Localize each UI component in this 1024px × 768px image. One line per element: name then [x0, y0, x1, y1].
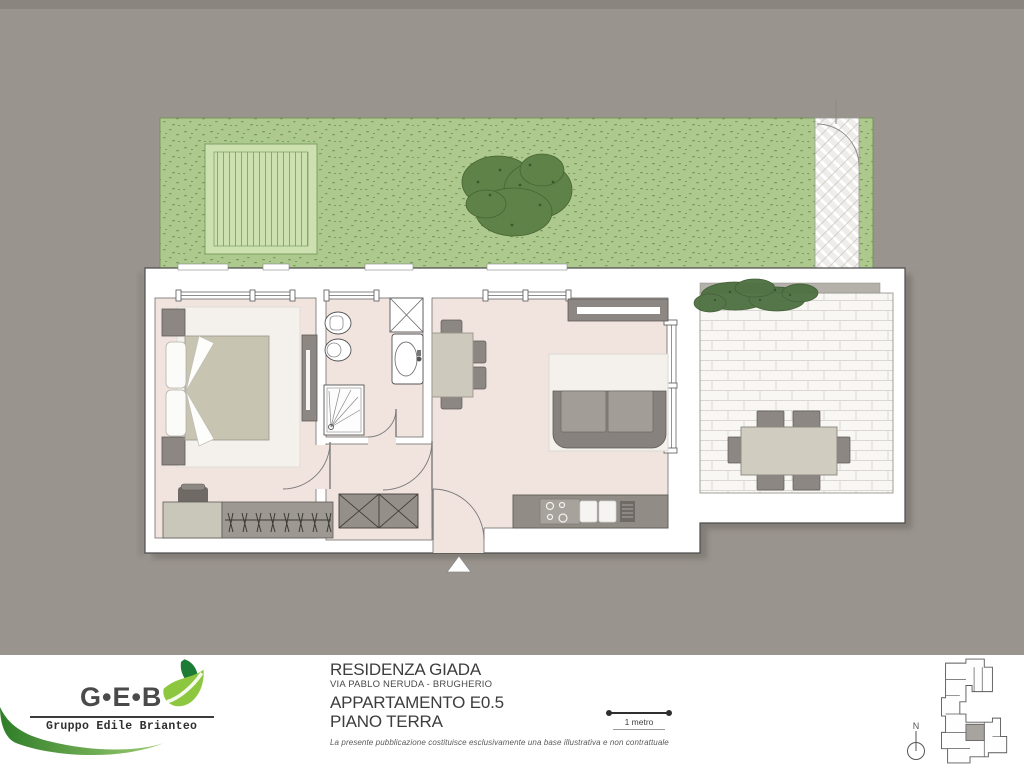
window-living	[483, 290, 571, 301]
window-bathroom	[324, 290, 379, 301]
apartment-label: APPARTAMENTO E0.5	[330, 693, 690, 712]
geb-logo: G•E•B Gruppo Edile Brianteo	[0, 655, 240, 768]
listing-floorplan-sheet: G•E•B Gruppo Edile Brianteo RESIDENZA GI…	[0, 0, 1024, 768]
toilet-icon	[325, 312, 351, 334]
backdrop-top-strip	[0, 0, 1024, 9]
washing-machine-icon	[390, 298, 423, 332]
garden-path	[815, 100, 859, 268]
residence-title: RESIDENZA GIADA	[330, 660, 690, 679]
pouf-icon	[178, 484, 208, 504]
key-plan-icon	[928, 657, 1010, 767]
compass-label: N	[913, 721, 920, 731]
residence-address: VIA PABLO NERUDA - BRUGHERIO	[330, 679, 690, 690]
sink-icon	[392, 334, 423, 384]
logo-leaf-icon	[155, 658, 207, 716]
dresser-icon	[163, 502, 222, 538]
floor-plan-drawing	[0, 0, 1024, 768]
sideboard-icon	[568, 299, 668, 321]
building-shadow-left	[138, 272, 145, 556]
kitchen-counter-icon	[513, 495, 668, 528]
scale-dot-left	[606, 710, 612, 716]
terrace	[694, 279, 893, 493]
window-bedroom	[176, 290, 295, 301]
hanger-rail-icon	[222, 502, 333, 538]
scale-line	[609, 712, 669, 714]
scale-label: 1 metro	[613, 717, 665, 730]
scale-dot-right	[666, 710, 672, 716]
kitchen-sink-icon	[580, 501, 635, 522]
logo-initials: G•E•B	[80, 684, 162, 711]
disclaimer-text: La presente pubblicazione costituisce es…	[330, 738, 690, 747]
project-info: RESIDENZA GIADA VIA PABLO NERUDA - BRUGH…	[330, 660, 690, 747]
wood-deck-icon	[205, 144, 317, 254]
bidet-icon	[325, 339, 351, 361]
garden	[160, 100, 873, 268]
logo-rule	[30, 716, 214, 718]
logo-tagline: Gruppo Edile Brianteo	[46, 720, 197, 733]
shower-icon	[324, 385, 364, 435]
closet-icon	[339, 494, 418, 528]
highlighted-unit	[966, 724, 984, 740]
sofa-icon	[553, 391, 666, 448]
footer: G•E•B Gruppo Edile Brianteo RESIDENZA GI…	[0, 655, 1024, 768]
tv-panel-icon	[302, 335, 317, 421]
scale-bar: 1 metro	[606, 712, 672, 730]
